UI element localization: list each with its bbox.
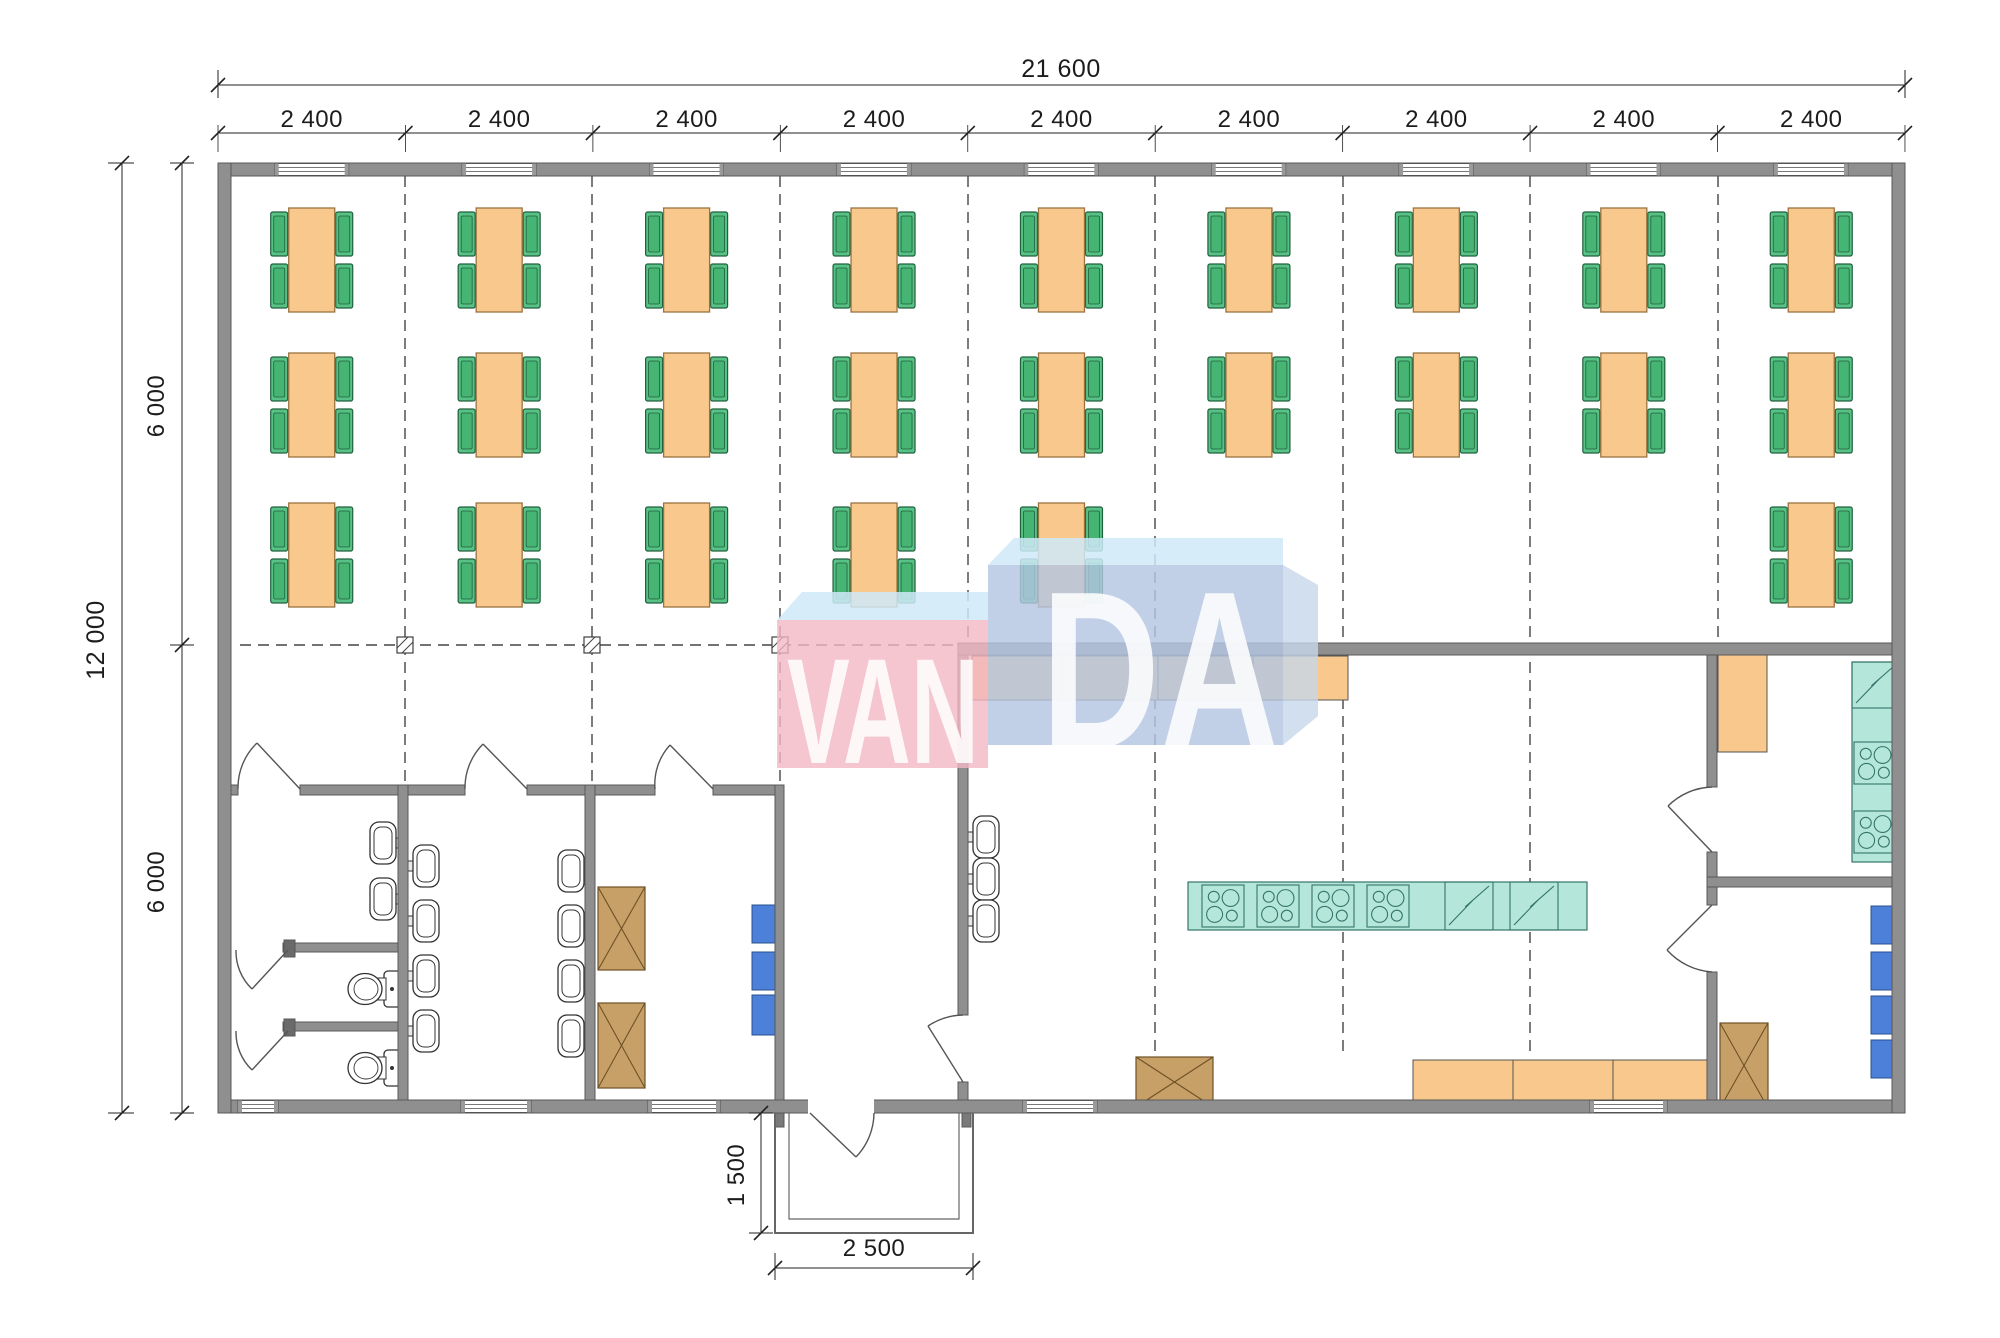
dining-chair-icon [1273,409,1290,453]
door-stall-1 [236,950,288,989]
wall-hall-left [775,785,784,1100]
door-stall-2 [236,1031,288,1070]
dining-chair-icon [523,357,540,401]
dining-set [1770,353,1852,457]
dim-label-bay: 2 400 [655,106,718,133]
dim-label-total-height: 12 000 [82,600,110,679]
dining-chair-icon [458,559,475,603]
dining-table [1038,353,1084,457]
dining-set [458,353,540,457]
porch-post-left [775,1113,784,1127]
dining-chair-icon [1770,264,1787,308]
dining-chair-icon [1273,212,1290,256]
toilet-icon [348,971,401,1007]
dining-chair-icon [646,507,663,551]
dining-table [1788,353,1834,457]
dim-label-bay: 2 400 [280,106,343,133]
door-pantry [1668,787,1712,852]
dining-chair-icon [646,409,663,453]
dining-set [1395,353,1477,457]
dining-table [1601,208,1647,312]
dining-chair-icon [336,409,353,453]
sink-icon [408,955,439,997]
dining-chair-icon [1835,507,1852,551]
entrance-opening [808,1099,874,1114]
door-changing [655,745,713,789]
dining-set [1208,208,1290,312]
dining-chair-icon [1583,264,1600,308]
sink-icon [558,1015,589,1057]
dining-set [1583,208,1665,312]
dim-label-bay: 2 400 [1218,106,1281,133]
dim-label-bay: 2 400 [1593,106,1656,133]
dim-label-bay: 2 400 [1030,106,1093,133]
dining-chair-icon [1583,409,1600,453]
window [461,1101,531,1113]
wall-stall-2 [283,1022,398,1031]
dining-table [476,503,522,607]
dining-chair-icon [271,264,288,308]
sink-icon [408,845,439,887]
dining-chair-icon [1835,264,1852,308]
dining-chair-icon [711,507,728,551]
entrance-porch [775,1113,973,1233]
locker [1871,906,1892,944]
dining-chair-icon [1460,409,1477,453]
dining-chair-icon [523,212,540,256]
dining-set [1020,208,1102,312]
bay-dimension-labels: 2 4002 4002 4002 4002 4002 4002 4002 400… [280,106,1842,133]
dining-chair-icon [1208,264,1225,308]
door-washroom [465,744,527,789]
wall-store-left-b [1707,972,1717,1100]
dining-chair-icon [1020,357,1037,401]
counter [1718,652,1767,752]
dining-chair-icon [898,409,915,453]
watermark-text-right: DA [1041,544,1279,796]
dining-table [1788,503,1834,607]
dining-table [1413,353,1459,457]
dining-chair-icon [898,507,915,551]
dining-chair-icon [711,409,728,453]
dining-chair-icon [523,507,540,551]
dining-chair-icon [1020,409,1037,453]
dining-set [1208,353,1290,457]
dining-set [1395,208,1477,312]
dining-chair-icon [1395,409,1412,453]
dim-label-total-width: 21 600 [1021,55,1100,83]
dining-chair-icon [1770,212,1787,256]
door-wc1 [238,743,300,789]
dim-label-porch-depth: 1 500 [723,1144,750,1207]
dining-chair-icon [336,357,353,401]
sink-icon [968,816,999,858]
stall-post-1 [284,940,295,957]
dining-chair-icon [1020,264,1037,308]
dining-set [833,353,915,457]
dining-chair-icon [1208,357,1225,401]
sink-icon [558,960,589,1002]
dining-table [289,208,335,312]
dining-chair-icon [523,264,540,308]
dining-chair-icon [1835,357,1852,401]
dining-chair-icon [1085,264,1102,308]
dining-chair-icon [1648,357,1665,401]
watermark-top-face-left [777,592,988,620]
dining-chair-icon [271,212,288,256]
porch-inner [789,1113,959,1219]
dining-set [1770,208,1852,312]
dining-set [1020,353,1102,457]
cabinet-x [598,1003,645,1088]
dining-set [833,208,915,312]
dim-label-bay: 2 400 [843,106,906,133]
wall-pantry-bottom [1707,877,1892,887]
sink-icon [408,900,439,942]
dining-set [271,353,353,457]
dining-chair-icon [1460,264,1477,308]
wall-pantry-left-a [1707,655,1717,787]
dining-chair-icon [336,507,353,551]
wall-wc-top-d [713,785,775,795]
locker [1871,952,1892,990]
dining-chair-icon [1208,212,1225,256]
dining-table [664,503,710,607]
window [1212,164,1286,176]
sink-icon [370,878,401,920]
dining-chair-icon [458,264,475,308]
dining-table [1038,208,1084,312]
locker [752,905,775,943]
door-kitchen-hall [928,1015,963,1082]
dining-set [646,503,728,607]
dining-chair-icon [336,212,353,256]
dining-set [271,208,353,312]
dining-chair-icon [711,212,728,256]
sink-icon [408,1010,439,1052]
dining-chair-icon [1770,507,1787,551]
dining-table [476,208,522,312]
dining-set [646,353,728,457]
dining-chair-icon [458,507,475,551]
dining-table [851,353,897,457]
dining-chair-icon [898,264,915,308]
dining-chair-icon [1085,409,1102,453]
dining-chair-icon [1085,357,1102,401]
wall-store-left-a [1707,887,1717,905]
dining-chair-icon [458,212,475,256]
window [1399,164,1473,176]
sink-icon [968,900,999,942]
window [462,164,536,176]
dining-chair-icon [898,212,915,256]
watermark-text-left: VAN [787,627,979,795]
dining-table [664,208,710,312]
dining-chair-icon [1583,357,1600,401]
dining-chair-icon [1273,264,1290,308]
dim-label-bay: 2 400 [1780,106,1843,133]
wall-stall-1 [283,943,398,952]
dining-set [1770,503,1852,607]
dining-table [664,353,710,457]
dim-label-half-height-top: 6 000 [143,375,170,438]
porch-outer [775,1113,973,1233]
watermark-side-face-right [1283,565,1318,745]
wall-outer-left [218,163,231,1113]
dining-chair-icon [1395,264,1412,308]
dining-chair-icon [1583,212,1600,256]
wall-wc-top-b [300,785,465,795]
window [648,1101,720,1113]
dining-chair-icon [523,559,540,603]
dining-table [1226,208,1272,312]
dining-chair-icon [1648,264,1665,308]
dining-chair-icon [523,409,540,453]
sink-icon [370,822,401,864]
locker [752,952,775,990]
dining-chair-icon [1460,357,1477,401]
door-entrance [810,1113,874,1157]
dining-chair-icon [646,357,663,401]
dining-table [851,503,897,607]
dim-label-bay: 2 400 [1405,106,1468,133]
dining-chair-icon [646,264,663,308]
dining-chair-icon [1395,212,1412,256]
dining-chair-icon [898,357,915,401]
dining-chair-icon [1648,409,1665,453]
dining-chair-icon [646,212,663,256]
locker [1871,996,1892,1034]
dining-set [1583,353,1665,457]
dining-chair-icon [458,357,475,401]
dim-label-half-height-bottom: 6 000 [143,851,170,914]
dining-table [289,353,335,457]
wall-kitchen-left-stub [958,1082,968,1100]
dining-chair-icon [1648,212,1665,256]
column-symbol [584,637,600,653]
wall-wc-divider-1 [398,785,408,1100]
window [837,164,911,176]
dining-chair-icon [271,409,288,453]
window [650,164,724,176]
dining-chair-icon [1273,357,1290,401]
dining-chair-icon [711,559,728,603]
dim-label-bay: 2 400 [468,106,531,133]
locker [1871,1040,1892,1078]
dining-table [289,503,335,607]
dining-chair-icon [711,357,728,401]
porch-post-right [962,1113,971,1127]
dining-set [458,503,540,607]
dining-chair-icon [1460,212,1477,256]
dining-chair-icon [336,559,353,603]
dining-chair-icon [833,357,850,401]
dining-table [851,208,897,312]
window [1024,164,1098,176]
wall-outer-right [1892,163,1905,1113]
dining-table [1226,353,1272,457]
dining-chair-icon [1085,212,1102,256]
window [275,164,349,176]
door-storeroom [1667,905,1712,972]
dining-set [458,208,540,312]
locker [752,995,775,1035]
wall-pantry-left-b [1707,852,1717,877]
pantry-counter [1852,662,1898,862]
dining-chair-icon [1770,357,1787,401]
dining-set [646,208,728,312]
dining-chair-icon [271,357,288,401]
dining-chair-icon [458,409,475,453]
window [1023,1101,1097,1113]
dining-chair-icon [1395,357,1412,401]
kitchen-island [1188,882,1587,930]
sink-icon [558,850,589,892]
dining-chair-icon [1770,409,1787,453]
sink-icon [558,905,589,947]
dining-chair-icon [833,264,850,308]
cabinet-x [598,887,645,970]
cabinet-x [1720,1023,1768,1108]
dining-chair-icon [271,507,288,551]
dining-table [476,353,522,457]
window [238,1101,278,1113]
dining-chair-icon [1020,212,1037,256]
floor-plan-canvas: VAN DA 2 4002 4002 4002 4002 4002 4002 4… [0,0,2000,1338]
dining-chair-icon [646,559,663,603]
wall-wc-divider-2 [585,785,595,1100]
dining-chair-icon [833,409,850,453]
dining-table [1413,208,1459,312]
sink-icon [968,858,999,900]
toilet-icon [348,1050,401,1086]
dining-chair-icon [1208,409,1225,453]
dining-chair-icon [1835,212,1852,256]
dining-chair-icon [833,212,850,256]
wall-wc-top-a [231,785,238,795]
dim-label-porch-width: 2 500 [843,1235,906,1262]
window [1590,1101,1667,1113]
dining-chair-icon [833,507,850,551]
dining-set [271,503,353,607]
dining-chair-icon [271,559,288,603]
column-symbol [397,637,413,653]
window [1774,164,1848,176]
dining-chair-icon [711,264,728,308]
dining-chair-icon [1835,409,1852,453]
dining-set [833,503,915,607]
dining-table [1788,208,1834,312]
dining-chair-icon [336,264,353,308]
dining-chair-icon [1770,559,1787,603]
window [1587,164,1661,176]
dining-table [1601,353,1647,457]
dining-chair-icon [1835,559,1852,603]
